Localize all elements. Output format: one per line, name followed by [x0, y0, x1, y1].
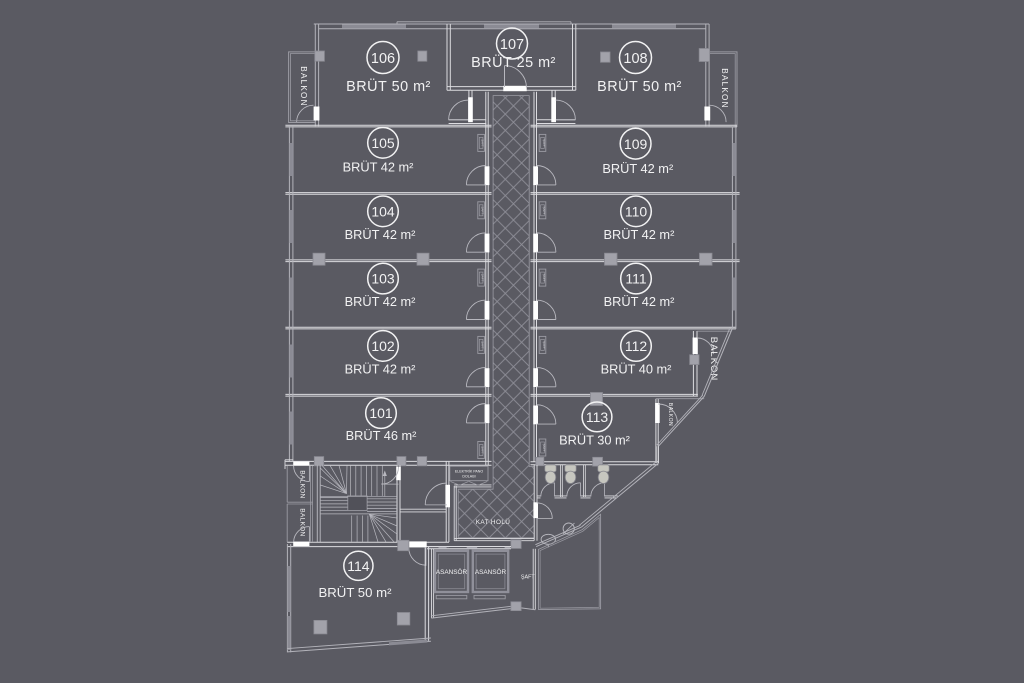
svg-text:ŞAFT: ŞAFT: [542, 341, 546, 349]
svg-text:108: 108: [623, 51, 647, 67]
svg-text:BRÜT 42 m²: BRÜT 42 m²: [345, 294, 417, 309]
svg-text:BRÜT 42 m²: BRÜT 42 m²: [604, 294, 676, 309]
svg-text:113: 113: [586, 409, 609, 425]
svg-text:BALKON: BALKON: [720, 68, 729, 108]
svg-text:ŞAFT: ŞAFT: [481, 446, 485, 454]
svg-text:103: 103: [371, 271, 395, 287]
svg-text:BRÜT 42 m²: BRÜT 42 m²: [345, 227, 417, 242]
svg-text:BALKON: BALKON: [299, 470, 306, 498]
svg-text:ŞAFT: ŞAFT: [542, 274, 546, 282]
svg-text:101: 101: [369, 405, 393, 421]
svg-text:111: 111: [625, 271, 646, 287]
svg-text:ASANSÖR: ASANSÖR: [436, 568, 468, 576]
svg-text:110: 110: [625, 203, 648, 219]
svg-text:105: 105: [371, 135, 395, 151]
svg-text:ŞAFT: ŞAFT: [542, 444, 546, 452]
svg-text:BRÜT 50 m²: BRÜT 50 m²: [597, 77, 682, 95]
svg-text:ŞAFT: ŞAFT: [542, 139, 546, 147]
svg-text:BRÜT 50 m²: BRÜT 50 m²: [318, 585, 392, 600]
svg-text:DOLABI: DOLABI: [462, 475, 475, 479]
svg-text:BALKON: BALKON: [667, 403, 673, 426]
svg-text:106: 106: [371, 51, 395, 67]
svg-text:ŞAFT: ŞAFT: [481, 206, 485, 214]
svg-text:107: 107: [500, 37, 524, 53]
svg-text:BRÜT 42 m²: BRÜT 42 m²: [345, 361, 417, 376]
svg-text:BRÜT 42 m²: BRÜT 42 m²: [343, 160, 415, 175]
svg-text:BRÜT 25 m²: BRÜT 25 m²: [471, 53, 556, 71]
svg-text:BALKON: BALKON: [299, 66, 308, 106]
svg-text:BRÜT 42 m²: BRÜT 42 m²: [602, 161, 674, 176]
svg-text:BALKON: BALKON: [299, 508, 306, 536]
svg-text:102: 102: [371, 338, 395, 354]
svg-text:KAT HOLÜ: KAT HOLÜ: [476, 518, 511, 526]
svg-text:BRÜT 42 m²: BRÜT 42 m²: [603, 227, 675, 242]
svg-text:ELEKTRİK PANO: ELEKTRİK PANO: [455, 469, 483, 474]
svg-text:ŞAFT: ŞAFT: [481, 139, 485, 147]
svg-text:BRÜT 40 m²: BRÜT 40 m²: [601, 361, 673, 376]
svg-text:112: 112: [625, 338, 648, 354]
svg-text:114: 114: [347, 558, 370, 574]
svg-text:BRÜT 30 m²: BRÜT 30 m²: [559, 433, 631, 448]
svg-text:ŞAFT: ŞAFT: [542, 206, 546, 214]
svg-text:109: 109: [624, 136, 648, 152]
svg-text:104: 104: [371, 203, 395, 219]
svg-text:BRÜT 46 m²: BRÜT 46 m²: [346, 428, 418, 443]
svg-text:ŞAFT: ŞAFT: [481, 274, 485, 282]
svg-text:ASANSÖR: ASANSÖR: [475, 568, 507, 576]
svg-text:BRÜT 50 m²: BRÜT 50 m²: [346, 77, 431, 95]
svg-text:ŞAFT: ŞAFT: [481, 341, 485, 349]
